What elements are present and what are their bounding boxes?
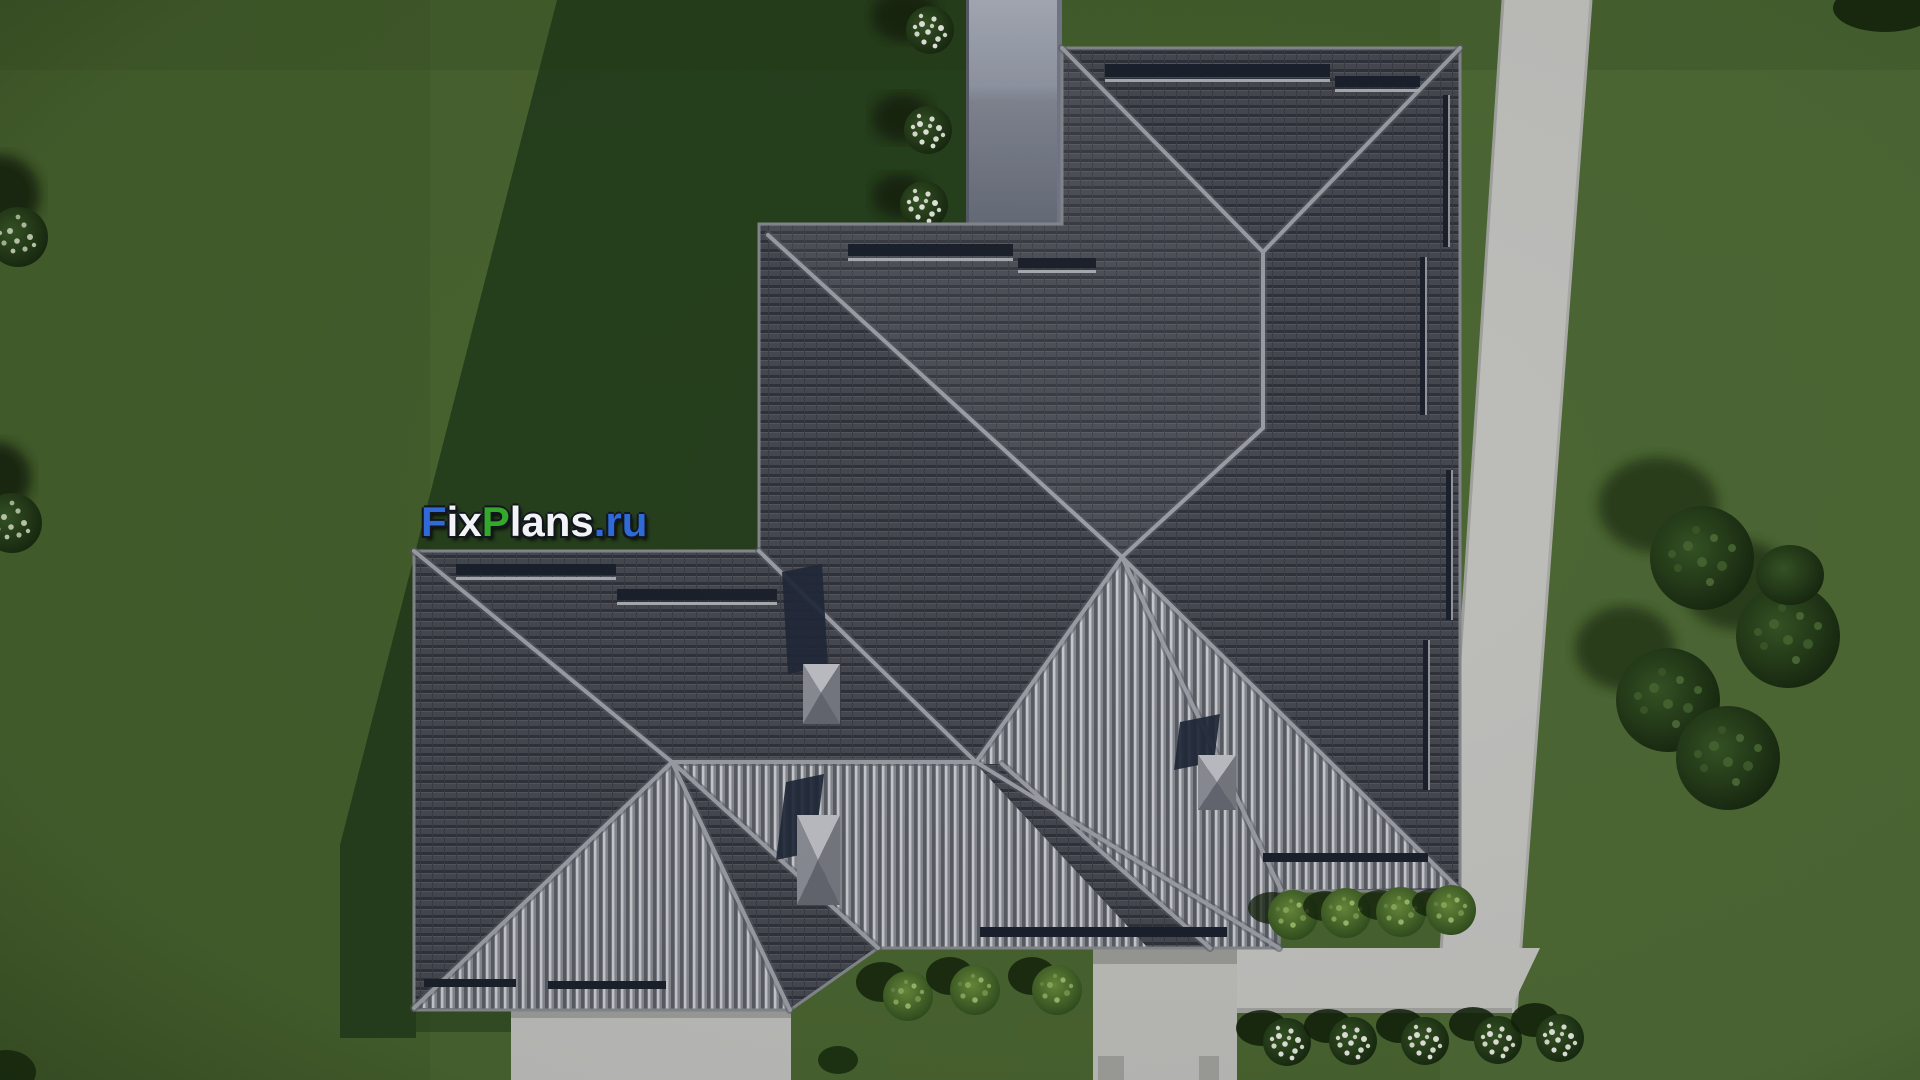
aerial-scene — [0, 0, 1920, 1080]
logo-segment-f: F — [421, 498, 447, 545]
logo-segment-p: P — [482, 498, 510, 545]
logo-segment-ix: ix — [447, 498, 482, 545]
fixplans-watermark: FixPlans.ru — [421, 501, 647, 543]
render-stage: FixPlans.ru — [0, 0, 1920, 1080]
logo-segment-ru: .ru — [594, 498, 648, 545]
logo-segment-lans: lans — [510, 498, 594, 545]
vignette-overlay — [0, 0, 1920, 1080]
